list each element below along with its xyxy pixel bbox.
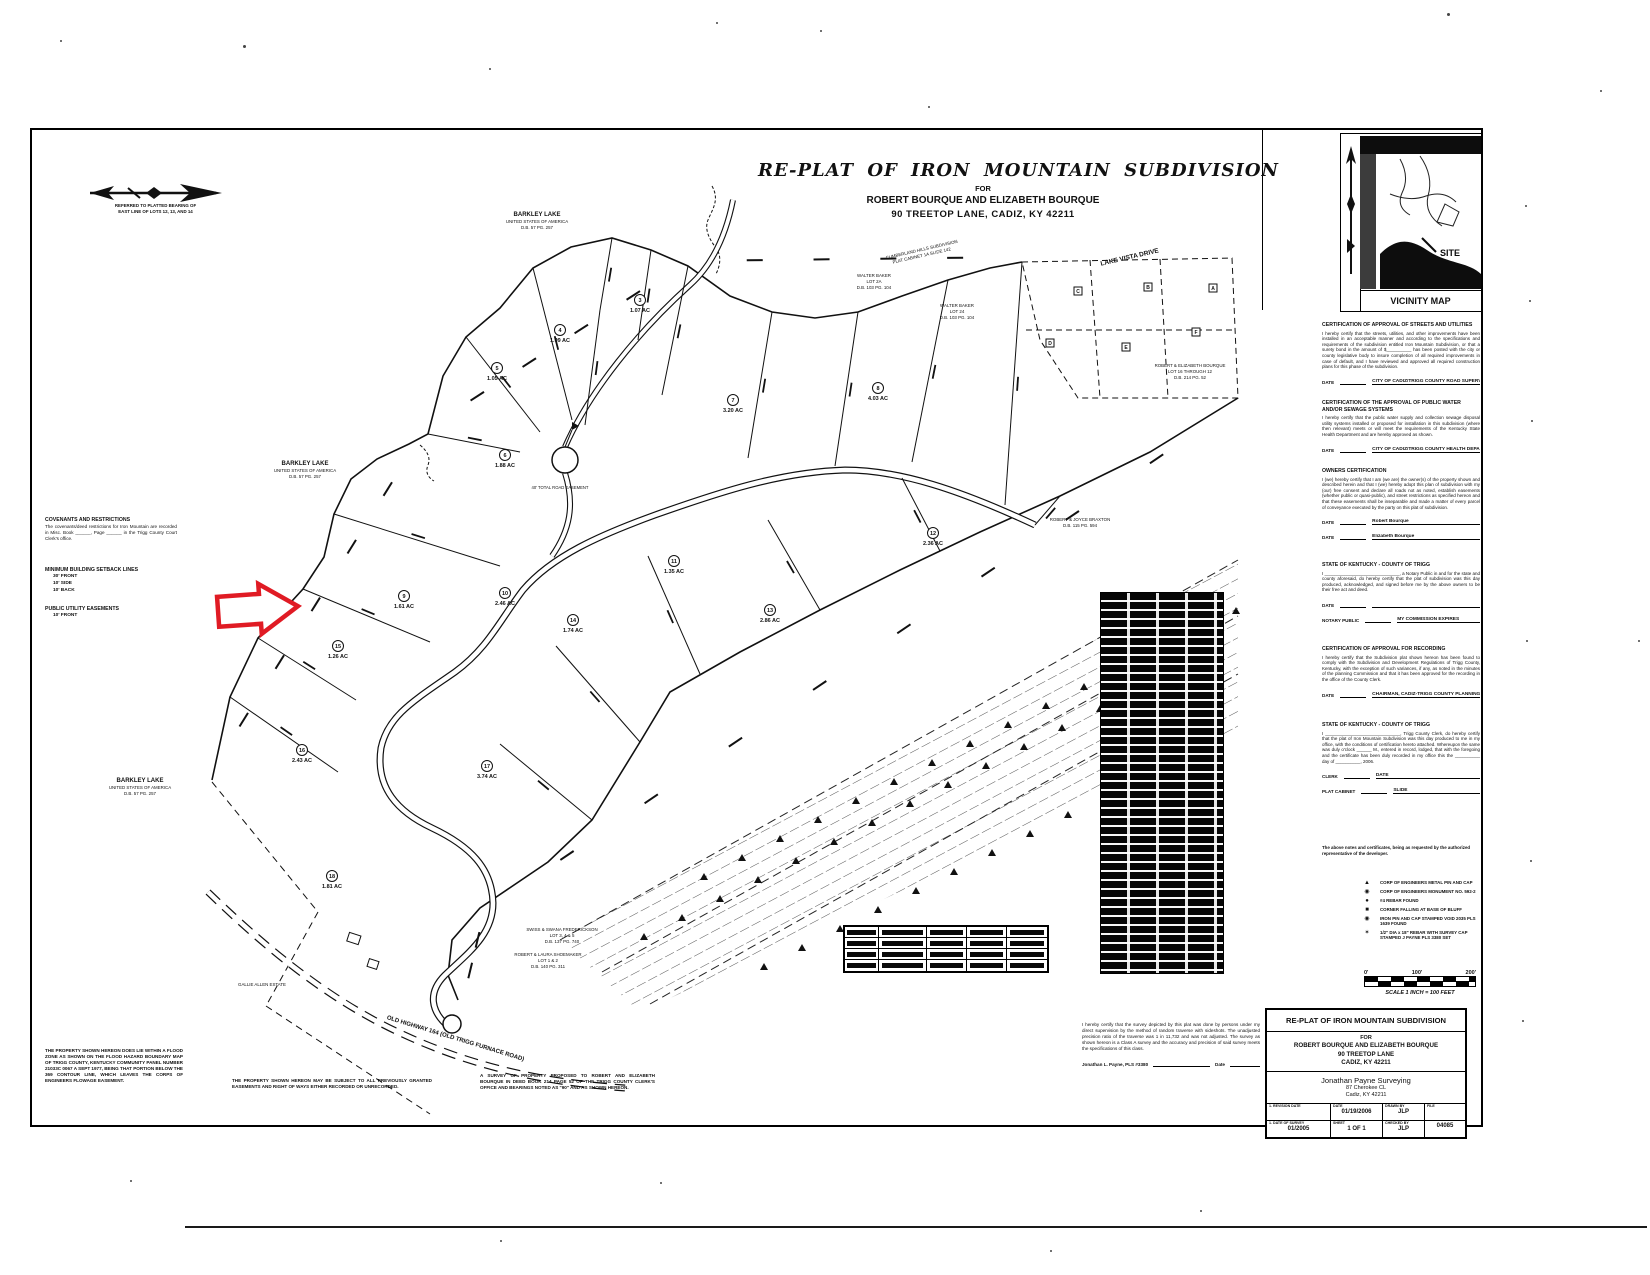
scan-speck <box>1050 1250 1052 1252</box>
surveyor-name: Jonathan L. Payne, PLS #3380 <box>1082 1062 1148 1067</box>
lot-number: 6 <box>503 453 506 459</box>
certification-block: CERTIFICATION OF APPROVAL FOR RECORDINGI… <box>1322 646 1480 698</box>
scan-speck <box>1525 205 1527 207</box>
utility-easement-note: PUBLIC UTILITY EASEMENTS 10' FRONT <box>45 606 177 620</box>
certification-heading: OWNERS CERTIFICATION <box>1322 468 1480 475</box>
map-label: WALTER BAKER <box>940 303 974 308</box>
curve-table-row <box>845 927 1047 938</box>
lot-number: 11 <box>671 559 677 565</box>
lot-acreage: 1.81 AC <box>322 884 342 890</box>
signature-row: DATE <box>1322 602 1480 608</box>
lot-number: 15 <box>335 644 341 650</box>
star-icon: ✶ <box>1362 930 1372 936</box>
certification-heading: STATE OF KENTUCKY - COUNTY OF TRIGG <box>1322 562 1480 569</box>
plat-map-svg: 51.05 AC41.09 AC31.07 AC61.88 AC73.20 AC… <box>30 128 1482 1125</box>
signature-row: DATECITY OF CADIZ/TRIGG COUNTY ROAD SUPE… <box>1322 379 1480 385</box>
file-number: 04085 <box>1427 1122 1463 1130</box>
surveyor-certification: I hereby certify that the survey depicte… <box>1082 1022 1260 1067</box>
scale-caption: SCALE 1 INCH = 100 FEET <box>1364 990 1476 996</box>
map-label: LOT 24 <box>950 309 965 314</box>
sheet-header: RE-PLAT OF IRON MOUNTAIN SUBDIVISION FOR… <box>758 160 1208 220</box>
map-label: ROBERT & JOYCE BRAXTON <box>1050 517 1111 522</box>
certification-body: I hereby certify that the Subdivision pl… <box>1322 655 1480 683</box>
lot-number: 17 <box>484 764 490 770</box>
scan-speck <box>716 22 718 24</box>
southwest-dashed-boundary <box>212 782 430 1114</box>
map-label: BARKLEY LAKE <box>117 778 164 784</box>
lot-number: 10 <box>502 591 508 597</box>
scan-artifact-line <box>185 1226 1647 1228</box>
scan-speck <box>928 106 930 108</box>
signature-label: DATE <box>1322 448 1334 453</box>
lot-letter: B <box>1146 285 1150 291</box>
vicinity-map-image: SITE <box>1360 134 1481 289</box>
signature-row: CLERKDATE <box>1322 773 1480 779</box>
legend: ▲CORP OF ENGINEERS METAL PIN AND CAP◉COR… <box>1362 880 1482 943</box>
map-label: BARKLEY LAKE <box>514 212 561 218</box>
legend-item: ▲CORP OF ENGINEERS METAL PIN AND CAP <box>1362 880 1482 886</box>
scan-speck <box>489 68 491 70</box>
map-label: LOT 3, 4 & 5 <box>550 933 575 938</box>
lot-number: 18 <box>329 874 335 880</box>
lot-letter: F <box>1194 330 1197 336</box>
lot-acreage: 2.46 AC <box>495 601 515 607</box>
scan-speck <box>130 1180 132 1182</box>
vicinity-map-caption: VICINITY MAP <box>1360 290 1481 311</box>
scan-speck <box>1638 640 1640 642</box>
surveyor-date-label: Date <box>1215 1062 1225 1067</box>
title-block-grid: 1. REVISION DATE DATE01/19/2006 DRAWN BY… <box>1267 1104 1465 1137</box>
curve-table <box>843 925 1049 973</box>
lot-number: 16 <box>299 748 305 754</box>
scan-speck <box>1531 420 1533 422</box>
red-annotation-arrow-icon <box>216 581 299 636</box>
legend-text: 1/2" DIA x 18" REBAR WITH SURVEY CAP STA… <box>1380 930 1482 941</box>
lot-number: 9 <box>402 594 405 600</box>
map-label: LOT 1 & 2 <box>538 958 558 963</box>
vicinity-map: SITE VICINITY MAP <box>1340 133 1482 312</box>
surveying-firm: Jonathan Payne Surveying <box>1269 1076 1463 1085</box>
scan-speck <box>1526 640 1528 642</box>
map-label: 40' TOTAL ROAD EASEMENT <box>532 485 589 490</box>
certification-body: I (we) hereby certify that I am (we are)… <box>1322 477 1480 511</box>
map-label: ROBERT & ELIZABETH BOURQUE <box>1155 363 1226 368</box>
signature-label: DATE <box>1322 603 1334 608</box>
sheet-number: 1 OF 1 <box>1333 1125 1380 1133</box>
lot-acreage: 2.43 AC <box>292 758 312 764</box>
legend-text: CORNER FALLING AT BASE OF BLUFF <box>1380 907 1462 912</box>
lot-acreage: 1.05 AC <box>487 376 507 382</box>
signature-label: DATE <box>1322 535 1334 540</box>
legend-item: ◉CORP OF ENGINEERS MONUMENT NO. 592-2 <box>1362 889 1482 895</box>
north-arrow-icon <box>90 184 222 202</box>
map-label: D.B. 57 PG. 257 <box>124 791 157 796</box>
certification-heading: CERTIFICATION OF APPROVAL FOR RECORDING <box>1322 646 1480 653</box>
signature-row: DATEElizabeth Bourque <box>1322 534 1480 540</box>
scale-tick: 100' <box>1412 970 1422 976</box>
signature-label: CLERK <box>1322 774 1338 779</box>
title-for: FOR <box>758 184 1208 193</box>
signature-title: DATE <box>1376 773 1480 779</box>
building-symbol <box>347 932 361 944</box>
certification-heading: CERTIFICATION OF APPROVAL OF STREETS AND… <box>1322 322 1480 329</box>
lot-acreage: 3.74 AC <box>477 774 497 780</box>
map-label: BARKLEY LAKE <box>282 461 329 467</box>
map-label: LAKE VISTA DRIVE <box>1100 247 1160 267</box>
lot-acreage: 3.20 AC <box>723 408 743 414</box>
lot-number: 5 <box>495 366 498 372</box>
page-title: RE-PLAT OF IRON MOUNTAIN SUBDIVISION <box>758 160 1208 181</box>
lot-letter: C <box>1076 289 1080 295</box>
lot-letter: A <box>1211 286 1215 292</box>
old-highway-164 <box>208 892 625 1088</box>
title-block-owner: ROBERT BOURQUE AND ELIZABETH BOURQUE <box>1269 1042 1463 1050</box>
easements-note: THE PROPERTY SHOWN HEREON MAY BE SUBJECT… <box>232 1078 432 1090</box>
certification-body: I hereby certify that the streets, utili… <box>1322 331 1480 370</box>
map-label: D.B. 57 PG. 257 <box>289 474 322 479</box>
building-symbol <box>367 959 379 970</box>
certification-body: I ______________________________, Trigg … <box>1322 731 1480 765</box>
scan-speck <box>1200 1210 1202 1212</box>
certification-body: I ______________________________, a Nota… <box>1322 571 1480 594</box>
scan-speck <box>1447 13 1450 16</box>
lot-letter-markers: ABCDEF <box>1046 283 1217 351</box>
map-label: GALLIE ALLEN ESTATE <box>238 982 286 987</box>
title-address: 90 TREETOP LANE, CADIZ, KY 42211 <box>758 209 1208 220</box>
scan-speck <box>500 1240 502 1242</box>
lot-number: 12 <box>930 531 936 537</box>
lot-number: 14 <box>570 618 577 624</box>
legend-item: ✶1/2" DIA x 18" REBAR WITH SURVEY CAP ST… <box>1362 930 1482 941</box>
scan-speck <box>1522 1020 1524 1022</box>
scale-tick: 200' <box>1466 970 1476 976</box>
triangle-icon: ▲ <box>1362 880 1372 886</box>
scan-speck <box>660 1182 662 1184</box>
signature-row: PLAT CABINETSLIDE <box>1322 788 1480 794</box>
map-label: LOT 2A <box>866 279 881 284</box>
lot-number: 8 <box>876 386 879 392</box>
signature-row: DATECHAIRMAN, CADIZ-TRIGG COUNTY PLANNIN… <box>1322 692 1480 698</box>
legend-text: IRON PIN AND CAP STAMPED VOID 2035 PLS 1… <box>1380 916 1482 927</box>
subdivision-boundary-north <box>212 238 1022 780</box>
signature-label: DATE <box>1322 380 1334 385</box>
signature-row: DATERobert Bourque <box>1322 519 1480 525</box>
setback-note: MINIMUM BUILDING SETBACK LINES 30' FRONT… <box>45 567 177 595</box>
map-label: UNITED STATES OF AMERICA <box>109 785 171 790</box>
title-block: RE-PLAT OF IRON MOUNTAIN SUBDIVISION FOR… <box>1265 1008 1467 1139</box>
signature-title: MY COMMISSION EXPIRES <box>1397 617 1480 623</box>
curve-table-row <box>845 949 1047 960</box>
signature-title: CHAIRMAN, CADIZ-TRIGG COUNTY PLANNING CO… <box>1372 692 1480 698</box>
map-label: D.B. 57 PG. 257 <box>521 225 554 230</box>
map-label: UNITED STATES OF AMERICA <box>274 468 336 473</box>
scale-bar: 0' 100' 200' SCALE 1 INCH = 100 FEET <box>1364 970 1476 996</box>
circled-dot-icon: ◉ <box>1362 889 1372 895</box>
revision-date: 01/19/2006 <box>1333 1108 1380 1116</box>
scan-speck <box>1529 300 1531 302</box>
certification-heading: STATE OF KENTUCKY - COUNTY OF TRIGG <box>1322 722 1480 729</box>
legend-item: ◉IRON PIN AND CAP STAMPED VOID 2035 PLS … <box>1362 916 1482 927</box>
lot-acreage: 1.74 AC <box>563 628 583 634</box>
lot-acreage: 2.36 AC <box>923 541 943 547</box>
signature-row: NOTARY PUBLICMY COMMISSION EXPIRES <box>1322 617 1480 623</box>
certification-heading: CERTIFICATION OF THE APPROVAL OF PUBLIC … <box>1322 400 1480 413</box>
flood-zone-note: THE PROPERTY SHOWN HEREON DOES LIE WITHI… <box>45 1048 183 1084</box>
certification-block: STATE OF KENTUCKY - COUNTY OF TRIGGI ___… <box>1322 722 1480 794</box>
scan-speck <box>820 30 822 32</box>
scan-speck <box>1530 860 1532 862</box>
signature-title: CITY OF CADIZ/TRIGG COUNTY ROAD SUPERVIS… <box>1372 379 1480 385</box>
signature-title: CITY OF CADIZ/TRIGG COUNTY HEALTH DEPART… <box>1372 447 1480 453</box>
map-label: D.B. 115 PG. 594 <box>1063 523 1098 528</box>
drawn-by: JLP <box>1385 1108 1422 1116</box>
title-owner: ROBERT BOURQUE AND ELIZABETH BOURQUE <box>758 195 1208 206</box>
scan-speck <box>1600 90 1602 92</box>
signature-title: Robert Bourque <box>1372 519 1480 525</box>
line-data-table <box>1100 592 1224 974</box>
signature-label: DATE <box>1322 520 1334 525</box>
certification-body: I hereby certify that the public water s… <box>1322 415 1480 438</box>
certification-block: CERTIFICATION OF THE APPROVAL OF PUBLIC … <box>1322 400 1480 453</box>
covenants-note: COVENANTS AND RESTRICTIONS The covenants… <box>45 517 177 542</box>
survey-date: 01/2005 <box>1269 1125 1328 1133</box>
map-label: D.B. 214 PG. 52 <box>1174 375 1207 380</box>
certification-block: OWNERS CERTIFICATIONI (we) hereby certif… <box>1322 468 1480 540</box>
lot-acreage: 1.35 AC <box>664 569 684 575</box>
signature-title: Elizabeth Bourque <box>1372 534 1480 540</box>
legend-item: ■CORNER FALLING AT BASE OF BLUFF <box>1362 907 1482 913</box>
map-label: ROBERT & LAURA SHOEMAKER <box>514 952 581 957</box>
certification-footer: The above notes and certificates, being … <box>1322 845 1480 856</box>
survey-reference-note: A SURVEY OF PROPERTY PROPOSED TO ROBERT … <box>480 1073 655 1091</box>
lot-acreage: 4.03 AC <box>868 396 888 402</box>
signature-row: DATECITY OF CADIZ/TRIGG COUNTY HEALTH DE… <box>1322 447 1480 453</box>
signature-label: NOTARY PUBLIC <box>1322 618 1359 623</box>
dot-icon: ● <box>1362 898 1372 904</box>
lot-letter: D <box>1048 341 1052 347</box>
certification-block: CERTIFICATION OF APPROVAL OF STREETS AND… <box>1322 322 1480 385</box>
signature-label: PLAT CABINET <box>1322 789 1355 794</box>
legend-text: CORP OF ENGINEERS MONUMENT NO. 592-2 <box>1380 889 1476 894</box>
square-icon: ■ <box>1362 907 1372 913</box>
legend-text: CORP OF ENGINEERS METAL PIN AND CAP <box>1380 880 1473 885</box>
scan-speck <box>243 45 246 48</box>
map-label: UNITED STATES OF AMERICA <box>506 219 568 224</box>
map-label: D.B. 103 PG. 104 <box>940 315 975 320</box>
signature-title: SLIDE <box>1393 788 1480 794</box>
map-label: D.B. 140 PG. 311 <box>531 964 566 969</box>
lot-acreage: 1.61 AC <box>394 604 414 610</box>
legend-text: #4 REBAR FOUND <box>1380 898 1419 903</box>
lot-number: 7 <box>731 398 734 404</box>
legend-item: ●#4 REBAR FOUND <box>1362 898 1482 904</box>
lot-acreage: 1.88 AC <box>495 463 515 469</box>
lot-number: 3 <box>638 298 641 304</box>
plat-sheet: 51.05 AC41.09 AC31.07 AC61.88 AC73.20 AC… <box>0 0 1650 1275</box>
curve-table-row <box>845 960 1047 971</box>
shoreline-squiggle <box>420 445 434 481</box>
curve-table-row <box>845 938 1047 949</box>
lot-acreage: 1.09 AC <box>550 338 570 344</box>
signature-label: DATE <box>1322 693 1334 698</box>
lot-acreage: 1.26 AC <box>328 654 348 660</box>
vicinity-north-arrow-icon <box>1341 134 1360 308</box>
scan-speck <box>60 40 62 42</box>
map-label: LOT 16 THROUGH 12 <box>1168 369 1213 374</box>
vicinity-north-strip <box>1341 134 1361 311</box>
north-arrow-note: REFERRED TO PLATTED BEARING OF EAST LINE… <box>88 203 223 214</box>
scale-bar-segments <box>1364 982 1476 987</box>
vicinity-site-label: SITE <box>1440 248 1460 258</box>
lot-number: 13 <box>767 608 773 614</box>
lot-acreage: 2.86 AC <box>760 618 780 624</box>
map-label: SWISS & SWANA FREDERICKSON <box>526 927 597 932</box>
title-block-title: RE-PLAT OF IRON MOUNTAIN SUBDIVISION <box>1267 1010 1465 1032</box>
lot-acreage: 1.07 AC <box>630 308 650 314</box>
map-label: D.B. 137 PG. 740 <box>545 939 580 944</box>
map-label: D.B. 103 PG. 104 <box>857 285 892 290</box>
certification-block: STATE OF KENTUCKY - COUNTY OF TRIGGI ___… <box>1322 562 1480 623</box>
map-label: WALTER BAKER <box>857 273 891 278</box>
scale-tick: 0' <box>1364 970 1368 976</box>
circled-dot-icon: ◉ <box>1362 916 1372 922</box>
signature-title <box>1372 607 1480 608</box>
